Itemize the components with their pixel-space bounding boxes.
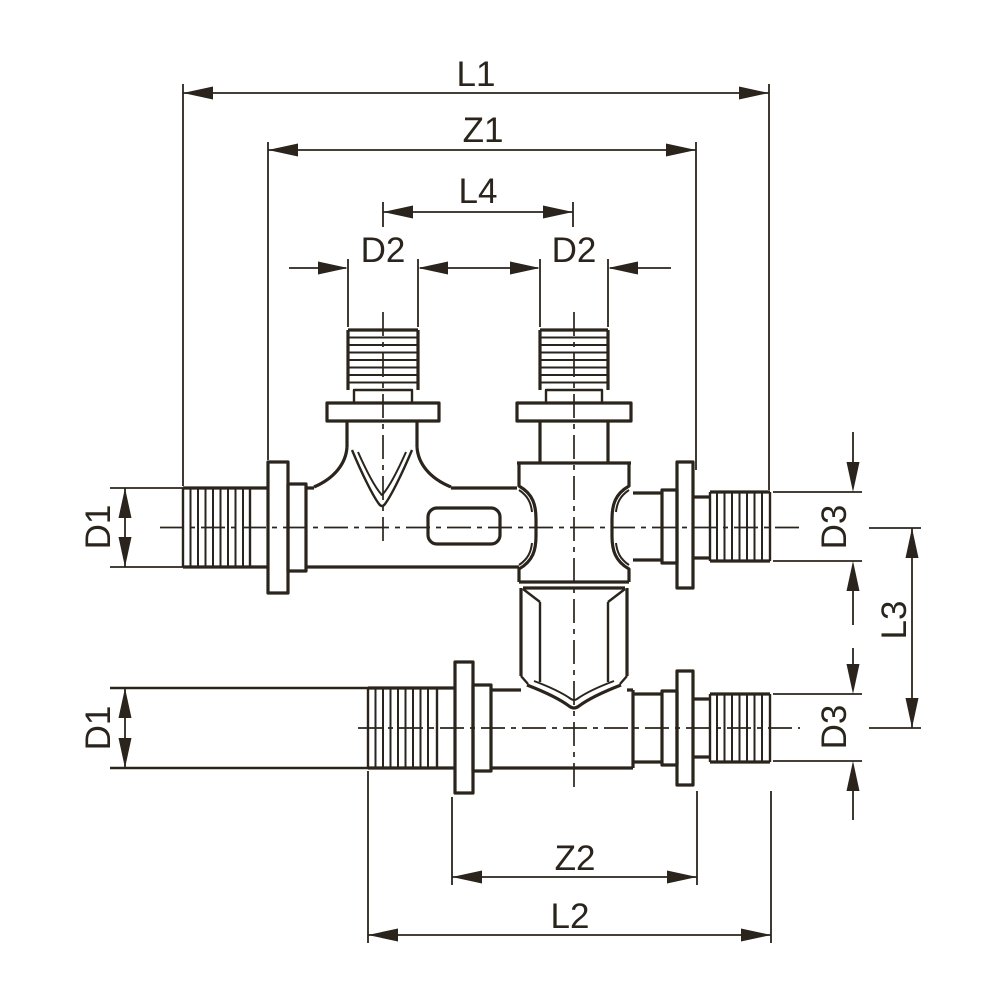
dim-label-d1-lower: D1 <box>79 706 118 751</box>
dimension-l3: L3 <box>869 528 921 728</box>
z2-arrow-left <box>452 871 482 884</box>
lower-left-pipe-tube <box>110 688 368 768</box>
upper-right-outlet <box>633 462 770 588</box>
l1-arrow-left <box>183 87 213 100</box>
dimension-d1-upper: D1 <box>79 488 132 567</box>
pipe-fitting-drawing: L1 Z1 L4 D2 D2 D1 D1 <box>0 0 1000 1000</box>
right-spigot-threads <box>540 330 608 390</box>
l4-arrow-left <box>383 206 413 219</box>
d3-lower-arrow-bottom <box>847 761 860 791</box>
left-spigot-neck <box>347 421 417 447</box>
dimension-d3-upper: D3 <box>773 432 862 625</box>
left-spigot-v-inner <box>358 452 406 495</box>
dimension-d3-lower: D3 <box>773 648 862 820</box>
d3-upper-arrow-top <box>847 462 860 492</box>
dimension-d1-lower: D1 <box>79 688 132 768</box>
l4-arrow-right <box>543 206 573 219</box>
dim-label-l3: L3 <box>875 601 914 640</box>
l3-arrow-top <box>906 528 919 558</box>
d2-right-arrow-a <box>510 262 540 275</box>
d2-left-arrow-a <box>318 262 348 275</box>
d3-upper-arrow-bottom <box>847 561 860 591</box>
d1-upper-arrow-bottom <box>119 537 132 567</box>
l1-arrow-right <box>739 87 769 100</box>
left-spigot-threads <box>348 330 418 390</box>
dim-label-d3-lower: D3 <box>815 705 854 750</box>
d1-lower-arrow-bottom <box>119 738 132 768</box>
l3-arrow-bottom <box>906 698 919 728</box>
l2-arrow-right <box>741 929 771 942</box>
dim-label-l1: L1 <box>457 55 496 94</box>
d2-right-arrow-b <box>608 262 638 275</box>
dim-label-z1: Z1 <box>463 111 504 150</box>
d2-left-arrow-b <box>418 262 448 275</box>
z1-arrow-left <box>268 144 298 157</box>
technical-drawing-canvas: L1 Z1 L4 D2 D2 D1 D1 <box>0 0 1000 1000</box>
dim-label-d2-left: D2 <box>361 231 406 270</box>
dim-label-l2: L2 <box>551 897 590 936</box>
dim-label-l4: L4 <box>459 172 498 211</box>
z1-arrow-right <box>666 144 696 157</box>
d3-lower-arrow-top <box>847 664 860 694</box>
dimension-z2: Z2 <box>452 791 697 885</box>
body-bottom-rim <box>519 582 629 588</box>
l2-arrow-left <box>368 929 398 942</box>
dimension-l4: L4 <box>383 172 573 227</box>
dim-label-z2: Z2 <box>555 839 596 878</box>
dimension-d2-left: D2 <box>289 231 538 327</box>
dim-label-d3-upper: D3 <box>815 505 854 550</box>
label-plate <box>428 508 500 544</box>
dimension-d2-right: D2 <box>510 231 671 327</box>
d1-lower-arrow-top <box>119 688 132 718</box>
dim-label-d1-upper: D1 <box>79 505 118 550</box>
centerlines <box>160 312 800 792</box>
dim-label-d2-right: D2 <box>552 231 597 270</box>
d1-upper-arrow-top <box>119 488 132 518</box>
z2-arrow-right <box>667 871 697 884</box>
